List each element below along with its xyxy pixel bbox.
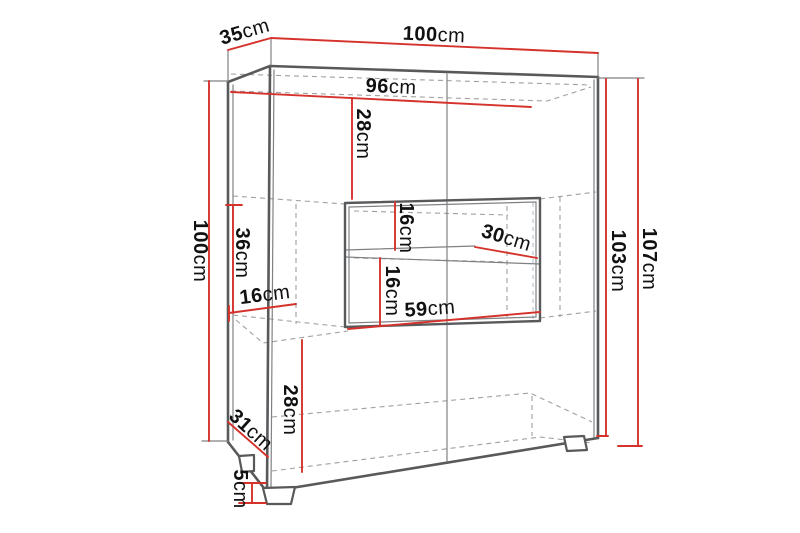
dim-label-niche-upper-height: 16cm bbox=[395, 203, 417, 254]
dim-label-total-height: 107cm bbox=[638, 228, 660, 291]
dim-label-left-height: 100cm bbox=[189, 220, 211, 283]
top-front-edge bbox=[270, 66, 598, 77]
glass-shelf-front-edge bbox=[345, 257, 540, 264]
dim-label-body-height: 103cm bbox=[607, 230, 629, 293]
dim-label-left-upper-height: 36cm bbox=[231, 228, 253, 279]
dim-label-niche-width: 59cm bbox=[404, 297, 456, 322]
dimension-labels: 35cm 100cm 96cm 28cm 16cm 30cm 16cm 59cm… bbox=[189, 15, 660, 509]
left-front-edge bbox=[267, 66, 270, 492]
dim-label-shelf-depth: 30cm bbox=[479, 220, 534, 256]
dim-label-interior-width: 96cm bbox=[365, 75, 417, 99]
leg-front-left bbox=[263, 487, 295, 504]
dim-label-niche-lower-height: 16cm bbox=[381, 266, 403, 317]
diagram-canvas: 35cm 100cm 96cm 28cm 16cm 30cm 16cm 59cm… bbox=[0, 0, 800, 533]
leg-front-right bbox=[564, 436, 587, 451]
dim-label-top-section-height: 28cm bbox=[352, 109, 374, 160]
cabinet-dimension-diagram: 35cm 100cm 96cm 28cm 16cm 30cm 16cm 59cm… bbox=[0, 0, 800, 533]
dim-label-bottom-section-height: 28cm bbox=[279, 385, 301, 436]
dim-label-top-width: 100cm bbox=[402, 23, 465, 48]
dim-label-leg-height: 5cm bbox=[229, 469, 251, 508]
legs bbox=[239, 436, 587, 504]
